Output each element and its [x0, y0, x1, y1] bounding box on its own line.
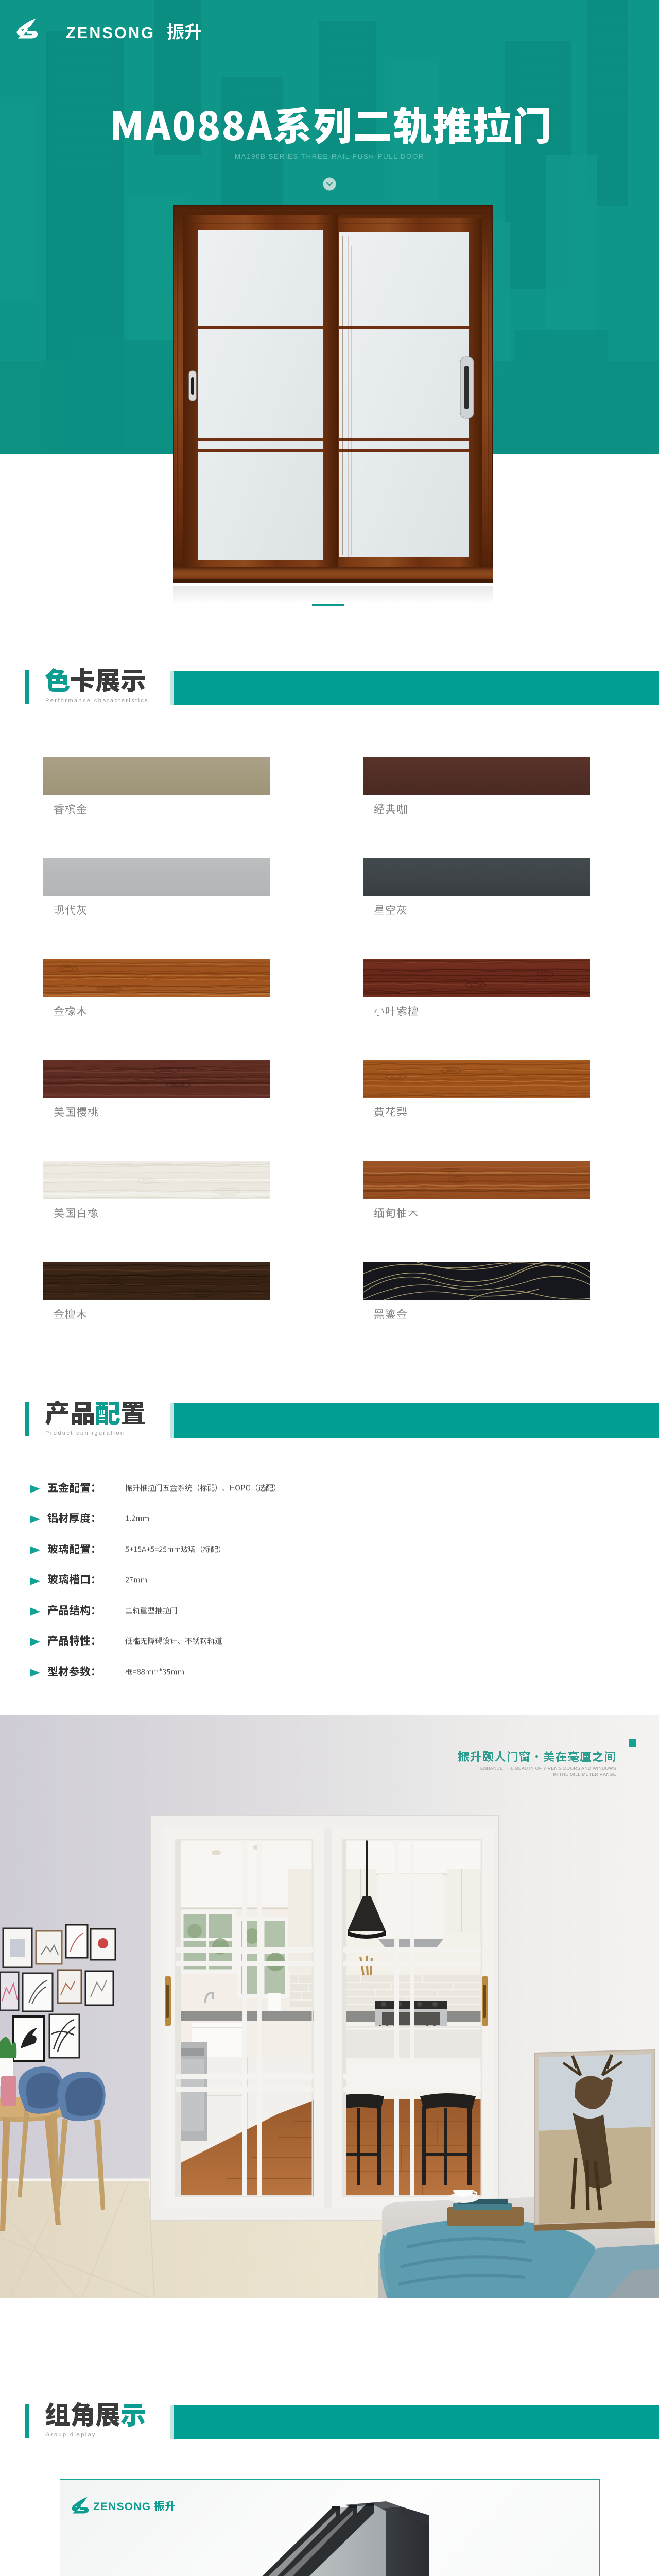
svg-text:ZENSONG: ZENSONG	[66, 24, 155, 42]
svg-text:ENHANCE THE BEAUTY OF YIREN'S: ENHANCE THE BEAUTY OF YIREN'S DOORS AND …	[480, 1766, 616, 1771]
svg-text:ZENSONG: ZENSONG	[93, 2501, 151, 2513]
svg-text:IN THE MILLIMETER RANGE: IN THE MILLIMETER RANGE	[553, 1772, 616, 1777]
